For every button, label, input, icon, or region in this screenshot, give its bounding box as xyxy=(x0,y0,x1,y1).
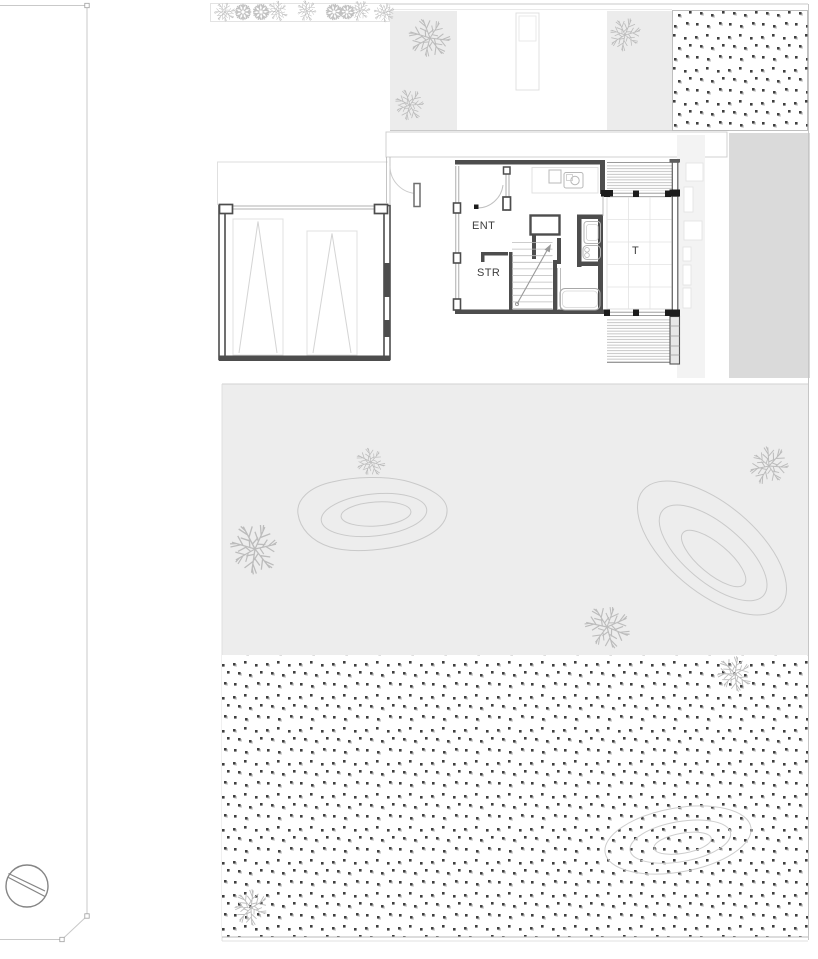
room-label-storage: STR xyxy=(477,268,500,279)
track-posts xyxy=(601,190,680,317)
gravel-area-bottom xyxy=(222,648,808,941)
shrub-row xyxy=(211,0,398,26)
garage xyxy=(218,162,391,361)
site-plan-canvas: ENT STR T xyxy=(0,0,818,959)
closet xyxy=(531,216,560,235)
house-plan xyxy=(454,159,681,365)
gravel-area-top xyxy=(673,11,808,131)
room-label-tatami: T xyxy=(632,246,639,257)
parking-stall xyxy=(233,219,283,355)
planter-feature xyxy=(516,13,539,90)
boundary-nodes xyxy=(60,3,89,941)
deck-lower xyxy=(607,312,679,362)
stone-strip xyxy=(677,135,705,378)
property-boundary xyxy=(0,6,87,940)
parking-stall xyxy=(307,231,357,355)
approach-path xyxy=(386,132,727,157)
room-label-entrance: ENT xyxy=(472,221,495,232)
survey-marker-icon xyxy=(6,865,48,907)
entry-gate xyxy=(387,157,421,207)
neighbor-band xyxy=(729,133,810,378)
tatami-grid xyxy=(607,197,672,309)
left-wall xyxy=(454,166,461,310)
entrance-door xyxy=(474,167,511,211)
bathtub xyxy=(560,289,600,311)
kitchen-counter xyxy=(532,168,598,194)
